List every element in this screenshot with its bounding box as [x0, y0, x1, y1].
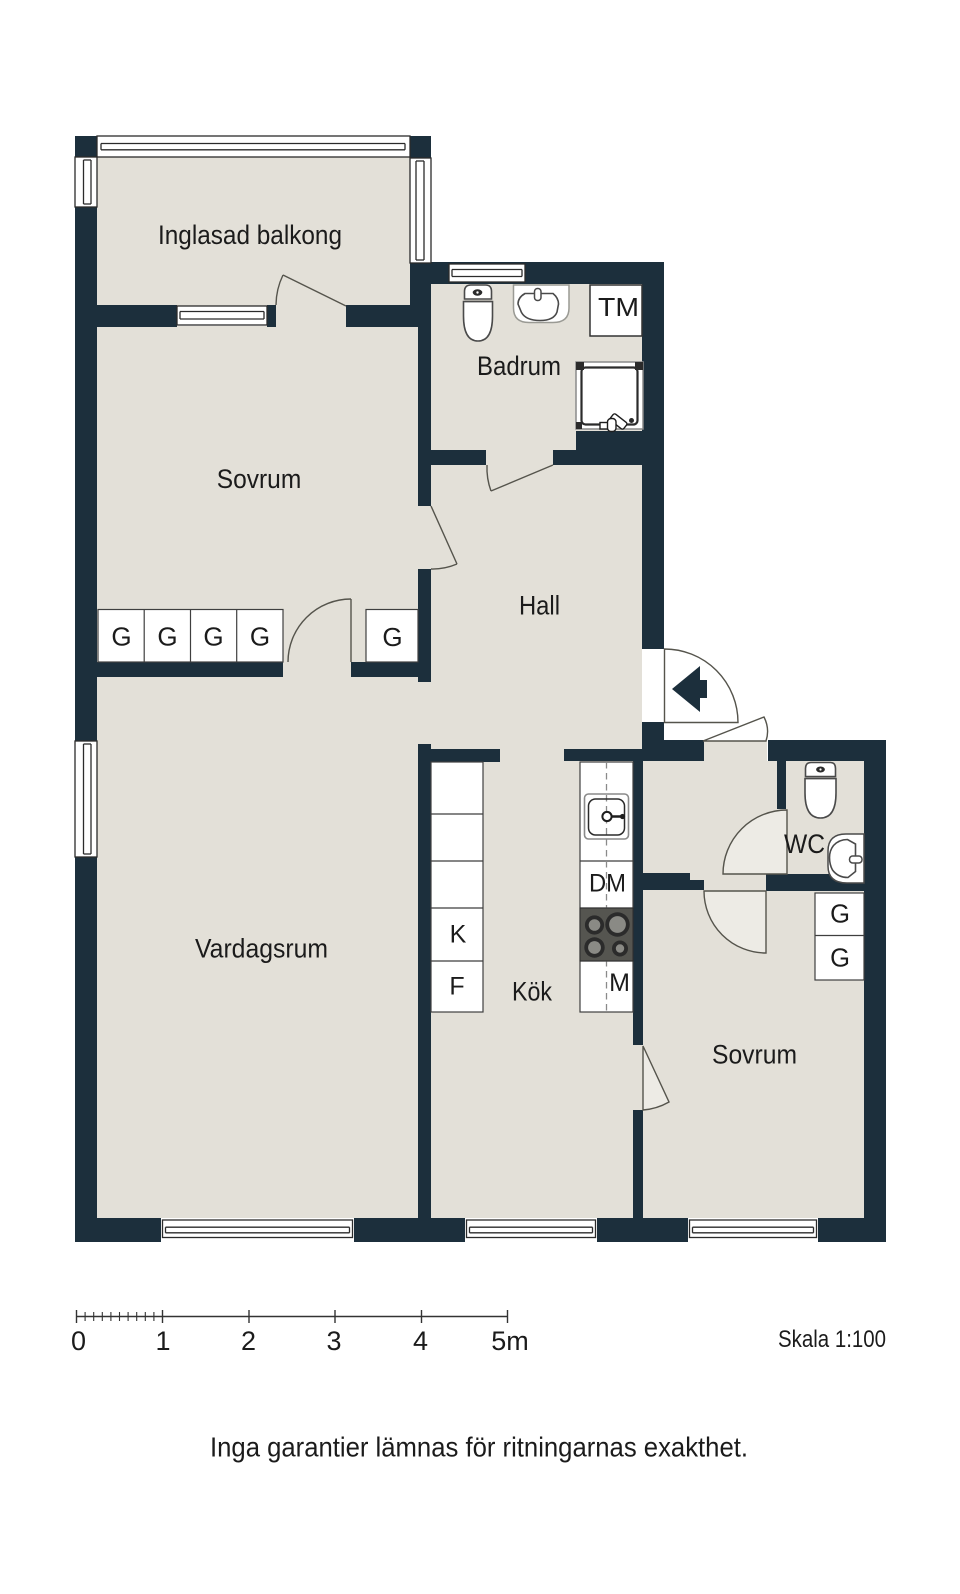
- svg-text:Skala 1:100: Skala 1:100: [778, 1326, 886, 1353]
- svg-text:4: 4: [413, 1326, 428, 1356]
- svg-text:5m: 5m: [491, 1326, 529, 1356]
- svg-text:G: G: [830, 945, 850, 973]
- svg-text:G: G: [157, 622, 177, 652]
- svg-text:G: G: [382, 622, 402, 652]
- svg-text:Badrum: Badrum: [477, 351, 561, 381]
- svg-text:Kök: Kök: [512, 977, 552, 1007]
- svg-text:Vardagsrum: Vardagsrum: [195, 934, 328, 964]
- svg-text:K: K: [450, 921, 467, 949]
- svg-text:1: 1: [155, 1326, 170, 1356]
- svg-text:M: M: [609, 969, 630, 997]
- svg-text:G: G: [250, 622, 270, 652]
- svg-text:Hall: Hall: [519, 591, 560, 621]
- svg-text:Sovrum: Sovrum: [712, 1040, 797, 1070]
- svg-text:0: 0: [71, 1326, 86, 1356]
- svg-text:G: G: [111, 622, 131, 652]
- svg-text:TM: TM: [598, 292, 639, 322]
- svg-text:G: G: [203, 622, 223, 652]
- svg-text:3: 3: [326, 1326, 341, 1356]
- svg-text:DM: DM: [589, 870, 626, 898]
- svg-text:Inglasad balkong: Inglasad balkong: [158, 220, 342, 250]
- svg-text:G: G: [830, 901, 850, 929]
- svg-text:Inga garantier lämnas för ritn: Inga garantier lämnas för ritningarnas e…: [210, 1432, 748, 1463]
- svg-text:F: F: [449, 973, 464, 1001]
- svg-text:Sovrum: Sovrum: [217, 464, 302, 494]
- svg-text:2: 2: [241, 1326, 256, 1356]
- svg-text:WC: WC: [784, 829, 825, 859]
